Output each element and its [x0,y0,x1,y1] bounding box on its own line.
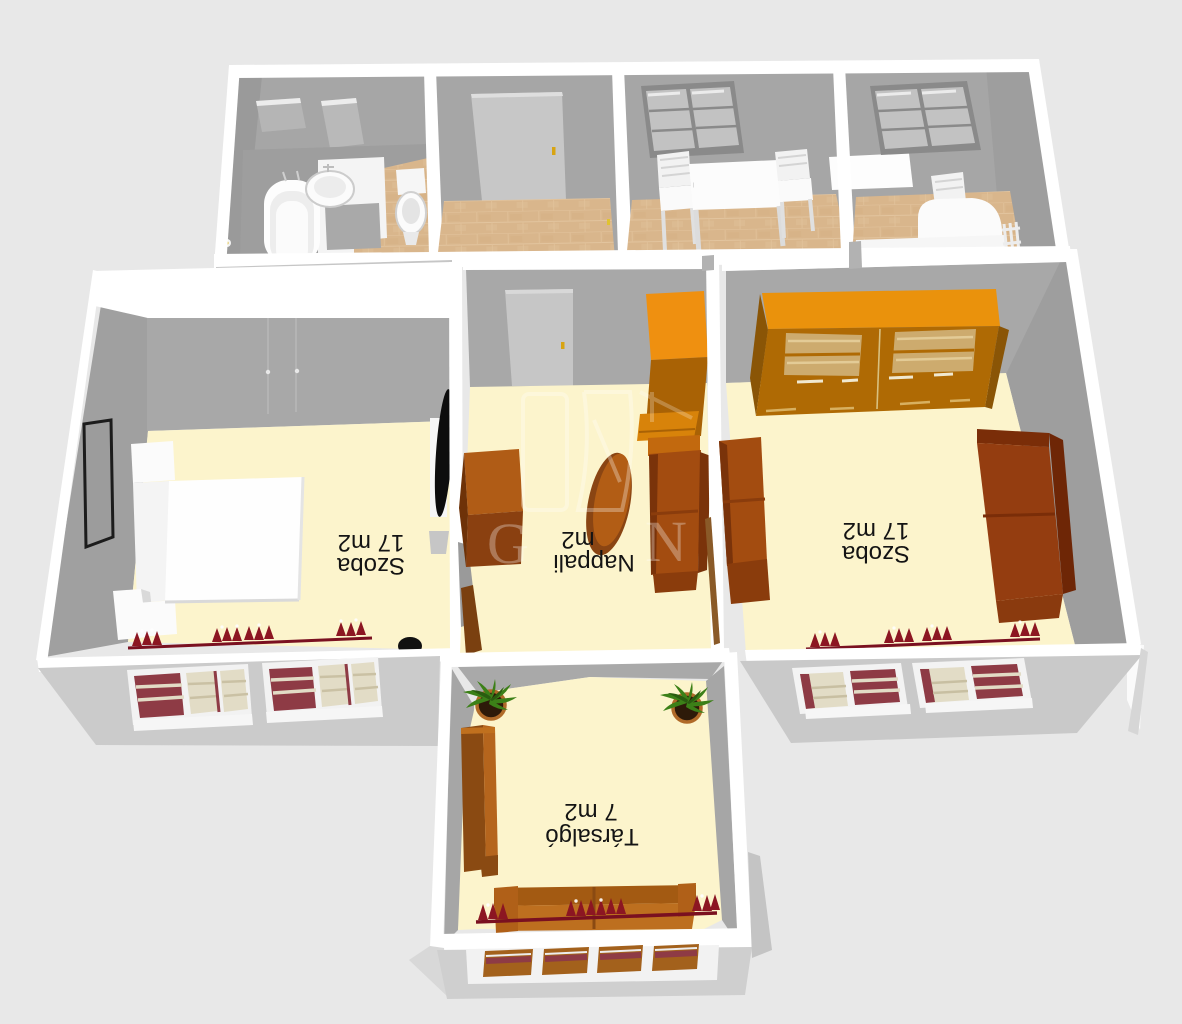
svg-text:7 m2: 7 m2 [564,798,617,825]
svg-text:N: N [645,509,687,574]
svg-text:17 m2: 17 m2 [843,517,910,544]
svg-text:Társalgó: Társalgó [545,823,638,850]
svg-text:G: G [487,511,529,576]
svg-text:m2: m2 [561,526,594,553]
svg-text:17 m2: 17 m2 [338,529,405,556]
